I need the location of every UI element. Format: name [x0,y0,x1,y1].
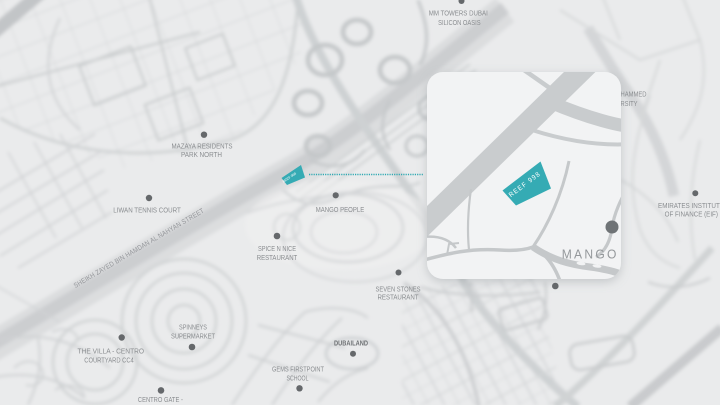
svg-text:MM TOWERS DUBAI: MM TOWERS DUBAI [429,9,488,18]
svg-text:GEMS FIRSTPOINT: GEMS FIRSTPOINT [272,365,324,374]
svg-text:COURTYARD CC4: COURTYARD CC4 [84,356,134,365]
svg-text:SILICON OASIS: SILICON OASIS [438,18,481,27]
svg-text:MANGO: MANGO [562,247,619,261]
svg-text:MAZAYA RESIDENTS: MAZAYA RESIDENTS [172,141,233,150]
svg-text:SUPERMARKET: SUPERMARKET [171,332,215,341]
svg-text:OF FINANCE (EIF): OF FINANCE (EIF) [665,210,718,219]
svg-text:DUBAILAND: DUBAILAND [334,339,368,348]
svg-text:HAMMED: HAMMED [621,90,647,99]
svg-text:RESTAURANT: RESTAURANT [257,253,298,262]
svg-text:CENTRO GATE -: CENTRO GATE - [138,395,183,404]
svg-text:RESTAURANT: RESTAURANT [378,293,420,302]
svg-text:SPICE N NICE: SPICE N NICE [258,244,296,253]
svg-text:SPINNEYS: SPINNEYS [179,323,207,332]
svg-text:LIWAN TENNIS COURT: LIWAN TENNIS COURT [113,205,181,214]
svg-text:SCHOOL: SCHOOL [287,374,309,383]
svg-text:PARK NORTH: PARK NORTH [181,150,222,159]
svg-text:MANGO PEOPLE: MANGO PEOPLE [316,205,365,214]
svg-text:THE VILLA - CENTRO: THE VILLA - CENTRO [78,346,145,355]
svg-text:RSITY: RSITY [621,99,638,108]
